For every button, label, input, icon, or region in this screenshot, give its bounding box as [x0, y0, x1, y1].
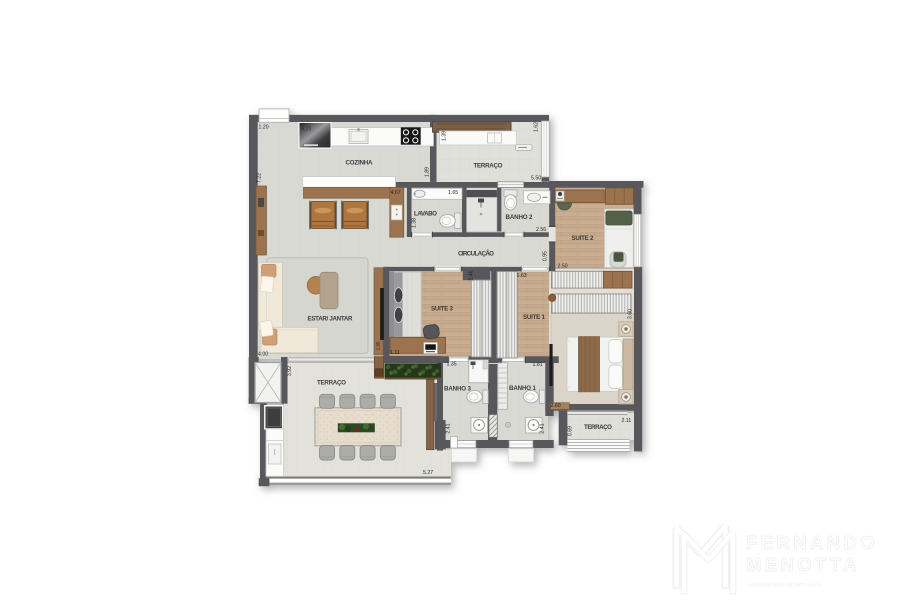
svg-text:1.63: 1.63 — [517, 273, 527, 279]
svg-text:COZINHA: COZINHA — [346, 160, 374, 167]
svg-text:ESTAR/ JANTAR: ESTAR/ JANTAR — [308, 316, 354, 323]
svg-text:BANHO 3: BANHO 3 — [444, 386, 472, 393]
svg-text:2.41: 2.41 — [446, 423, 452, 433]
svg-text:SUITE 2: SUITE 2 — [572, 235, 595, 242]
svg-text:7.22: 7.22 — [257, 173, 263, 183]
svg-text:1.11: 1.11 — [390, 350, 400, 356]
svg-text:1.62: 1.62 — [534, 122, 540, 132]
svg-text:2.46: 2.46 — [469, 270, 475, 280]
svg-text:2.60: 2.60 — [551, 403, 561, 409]
svg-text:1.38: 1.38 — [412, 218, 418, 228]
svg-text:0.95: 0.95 — [543, 251, 549, 261]
svg-text:CONSTRUTORA DE DETALHES: CONSTRUTORA DE DETALHES — [747, 583, 821, 588]
svg-text:SUITE 1: SUITE 1 — [523, 314, 546, 321]
svg-text:TERRAÇO: TERRAÇO — [317, 380, 346, 387]
svg-text:2.35: 2.35 — [376, 341, 381, 350]
svg-text:2.56: 2.56 — [536, 227, 546, 233]
svg-text:TERRAÇO: TERRAÇO — [584, 424, 612, 431]
svg-text:3.92: 3.92 — [287, 366, 293, 376]
svg-text:0.69: 0.69 — [568, 426, 574, 436]
svg-text:CIRCULAÇÃO: CIRCULAÇÃO — [458, 250, 494, 257]
svg-text:2.41: 2.41 — [540, 423, 546, 433]
svg-text:1.39: 1.39 — [442, 131, 448, 141]
svg-text:4.20: 4.20 — [302, 127, 312, 133]
svg-text:1.89: 1.89 — [425, 167, 431, 177]
svg-text:TERRAÇO: TERRAÇO — [474, 163, 503, 170]
svg-text:FERNANDO: FERNANDO — [746, 532, 878, 553]
svg-text:4.00: 4.00 — [258, 352, 268, 358]
svg-text:MENOTTA: MENOTTA — [746, 554, 860, 575]
svg-text:1.81: 1.81 — [533, 362, 543, 368]
svg-text:1.35: 1.35 — [447, 362, 457, 368]
svg-text:2.50: 2.50 — [558, 264, 568, 270]
svg-text:LAVABO: LAVABO — [414, 210, 437, 217]
svg-text:1.65: 1.65 — [448, 190, 458, 196]
svg-text:4.67: 4.67 — [391, 190, 401, 196]
svg-text:2.11: 2.11 — [622, 418, 632, 424]
svg-text:3.60: 3.60 — [628, 309, 634, 319]
svg-text:5.27: 5.27 — [423, 470, 433, 476]
svg-text:BANHO 2: BANHO 2 — [506, 214, 534, 221]
svg-text:5.50: 5.50 — [531, 175, 541, 181]
svg-text:1.20: 1.20 — [259, 125, 269, 131]
svg-text:SUITE 3: SUITE 3 — [431, 306, 454, 313]
svg-text:BANHO 1: BANHO 1 — [509, 385, 537, 392]
